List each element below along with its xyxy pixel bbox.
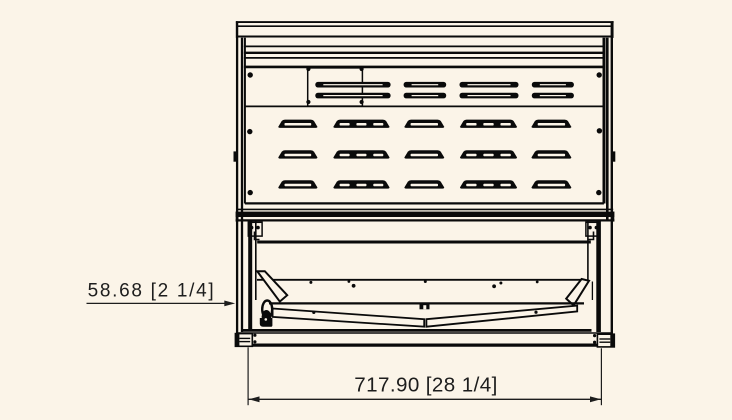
svg-text:58.68 [2 1/4]: 58.68 [2 1/4]	[88, 280, 216, 301]
svg-text:717.90 [28 1/4]: 717.90 [28 1/4]	[354, 374, 497, 397]
